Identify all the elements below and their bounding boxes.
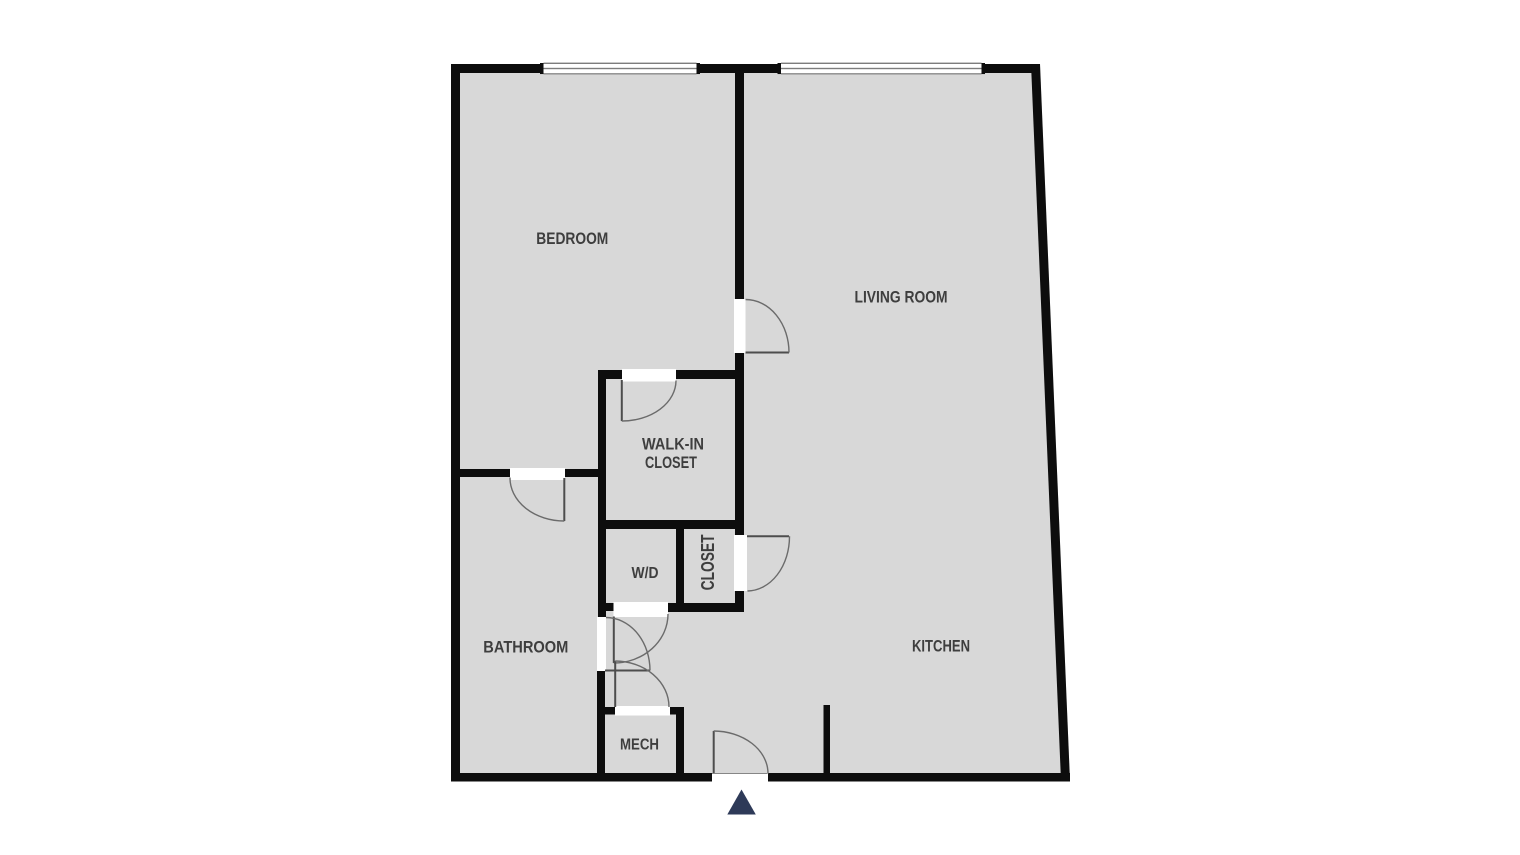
svg-text:W/D: W/D xyxy=(632,565,659,582)
svg-text:CLOSET: CLOSET xyxy=(698,534,718,590)
svg-text:KITCHEN: KITCHEN xyxy=(912,637,970,656)
svg-text:WALK-IN: WALK-IN xyxy=(642,434,704,453)
svg-text:BATHROOM: BATHROOM xyxy=(483,637,568,656)
svg-text:CLOSET: CLOSET xyxy=(645,453,697,472)
svg-text:MECH: MECH xyxy=(620,736,659,753)
svg-text:LIVING ROOM: LIVING ROOM xyxy=(855,287,948,306)
svg-text:BEDROOM: BEDROOM xyxy=(536,229,608,248)
